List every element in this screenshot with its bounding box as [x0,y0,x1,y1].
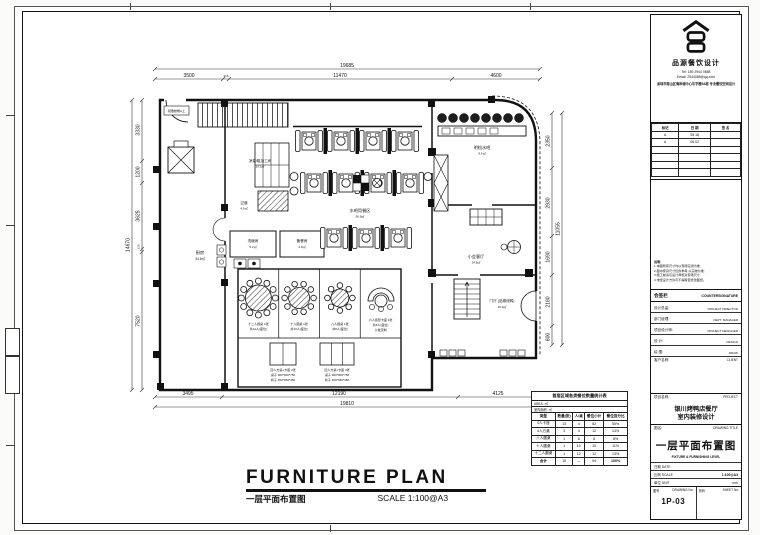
project-row: 项目名称: PROJECT [651,394,741,404]
brand-logo-icon [678,19,714,55]
shaft [434,155,448,211]
legend-caption: 共6人(座位) [373,322,389,327]
notes-block: 说明: 1.本图所有尺寸均以现场实测为准; 2.图中家具尺寸仅供参考,以实物为准… [651,259,741,289]
bar-counter [438,126,526,136]
stats-row: 十人圆桌1 1010 11% [532,443,628,451]
dining-label: 水吧用餐区 [350,207,371,214]
bar-area: 9.6㎡ [478,151,485,156]
registration-tick [6,225,15,226]
furniture-legend: 十二人圆桌 1张 共12人(座位) 十人圆桌 1张 共10人(座位) 八人圆桌 … [238,269,401,387]
sign-row: 设 计:DESIGN [651,335,741,346]
foyer-area: 16.9㎡ [498,304,507,309]
drawing-title-cn: 一层平面布置图 [651,435,741,455]
legend-caption: 共8人(座位) [332,326,348,331]
meta-scale: 比例 SCALE1:100@A3 [651,470,741,478]
svg-text:1200: 1200 [136,166,142,177]
legend-caption: 桌子 900*900*750 [325,372,350,377]
drawing-title-row: 图名: DRAWING TITLE [651,425,741,435]
stats-row: 八人圆桌1 88 8% [532,435,628,443]
stats-row: 十二人圆桌1 1212 13% [532,450,628,458]
svg-text:4125: 4125 [492,391,503,397]
registration-tick [530,3,531,10]
service-stair-hatch [258,191,288,211]
svg-text:12190: 12190 [332,391,346,397]
bar-label: 明档水吧 [474,144,492,151]
drawing-number-block: 图号 DRAWING No. 1P-03 页码 SHEET No. [651,486,741,519]
stats-title: 首层区域各类餐位数量统计表 [532,392,628,401]
svg-text:3330: 3330 [136,124,142,135]
foyer-label: 门厅 (品源烧鸭) [490,298,515,303]
svg-text:7520: 7520 [136,315,142,326]
svg-text:2350: 2350 [546,135,552,146]
title-underline [246,489,486,492]
rev-cell [711,139,741,147]
drawing-sheet: { "title_block": { "brand": { "name": "品… [0,0,760,535]
coldroom-label: 凉菜/粗加工间 [249,158,272,163]
sheet-title-cn: 一层平面布置图 [246,493,306,505]
legend-caption: 十人圆桌 1张 [290,321,308,326]
registration-tick [330,525,331,532]
legend-caption: 四人方桌+卡座 3张 [324,367,349,372]
revision-table: 标记 日 期 签 名 A 05.18 A 06.02 [651,123,741,180]
sign-row: 部门经理:DEPT. MANAGER [651,313,741,324]
svg-text:2930: 2930 [546,197,552,208]
svg-text:1690: 1690 [546,251,552,262]
svg-text:11055: 11055 [556,222,562,236]
dishroom-label: 洗碗间 [248,238,259,243]
svg-text:800: 800 [546,333,552,342]
registration-tick [6,115,15,116]
brand-address: 深圳市南山区海岸城中心写字楼5A栋 专业餐饮空间设计 [651,81,741,86]
legend-caption: 椅子 450*450*450 [271,377,296,382]
stats-total-row: 合计19 —94 100% [532,458,628,466]
sheet-title-en: FURNITURE PLAN [246,467,486,489]
sign-row: 项目设计师:PROJECT DESIGNER [651,324,741,335]
svg-text:19810: 19810 [340,401,354,407]
rev-cell: 05.18 [679,131,711,139]
title-block: 品源餐饮设计 Tel: 189 2944 0888 Email: 2944088… [650,14,742,520]
legend-caption: 共10人(座位) [290,326,307,331]
legend-caption: 桌子 900*900*750 [271,372,296,377]
rev-header: 日 期 [679,124,711,132]
sheet-scale: SCALE 1:100@A3 [378,493,449,505]
legend-caption: 十二人圆桌 1张 [248,321,269,326]
pantry-area: 4.8㎡ [298,244,305,249]
countersignature-header: 会签栏 COUNTERSIGNATURE [651,289,741,302]
svg-text:2180: 2180 [546,296,552,307]
lounge-area: 14.6㎡ [472,260,481,265]
brand-header: 品源餐饮设计 Tel: 189 2944 0888 Email: 2944088… [651,15,741,123]
legend-caption: 椅子 450*450*450 [325,377,350,382]
note-line: 4.未经设计方许可不得擅自修改图纸。 [654,278,738,282]
sheet-title: FURNITURE PLAN 一层平面布置图 SCALE 1:100@A3 [246,467,486,505]
rev-cell: 06.02 [679,139,711,147]
corridor-label: 过道 [240,200,248,205]
drawing-title-en: FIXTURE & FURNISHING LEVEL [651,455,741,462]
svg-text:3625: 3625 [136,210,142,221]
registration-tick [130,3,131,10]
svg-text:3495: 3495 [182,391,193,397]
registration-tick [330,3,331,10]
kitchen-area: 34.6㎡ [195,256,205,261]
lounge-label: 小会客厅 [468,253,485,260]
seat-statistics-table: 首层区域各类餐位数量统计表 AREA: ㎡ 室内面积: ㎡ 类型 数量(张) 人… [531,391,628,466]
rev-header: 标记 [652,124,679,132]
legend-caption: 六人弧形卡座 1张 [369,317,393,322]
legend-caption: 四人方桌+卡座 2张 [270,367,295,372]
legend-caption: 八人圆桌 1张 [331,321,349,326]
brand-email: Email: 2944088@qq.com [651,75,741,79]
rev-cell: A [652,131,679,139]
dining-area: 56.9㎡ [356,214,365,219]
svg-text:14670: 14670 [126,238,132,252]
margin-stamp-box [5,356,20,394]
stats-row: 4人方桌3 412 13% [532,428,628,436]
corridor-area: 4.6㎡ [240,206,247,211]
rev-cell [711,131,741,139]
legend-caption: 沙发定制 [375,327,387,332]
margin-stamp-box [5,328,20,356]
registration-tick [6,445,15,446]
floor-plan: 疏散楼梯A上 厨房 34.6㎡ 凉菜/粗加工间 10.1㎡ 过道 4.6㎡ 洗碗… [120,55,612,423]
foyer-stair [454,279,480,319]
svg-text:315: 315 [223,74,228,78]
rev-cell: A [652,139,679,147]
svg-text:11470: 11470 [333,73,347,79]
svg-text:130: 130 [137,244,141,249]
dishroom-area: 5.2㎡ [249,244,256,249]
sign-row: 设计总监:PROJECT DIRECTOR [651,302,741,313]
rev-header: 签 名 [711,124,741,132]
brand-tel: Tel: 189 2944 0888 [651,70,741,74]
stats-row: 4人卡座13 452 55% [532,420,628,428]
sign-row: 绘 图:DRAW [651,346,741,357]
project-name: 银川烤鸭店餐厅 室内装修设计 [651,404,741,425]
svg-text:19685: 19685 [340,63,354,69]
svg-text:3500: 3500 [183,73,194,79]
client-row: 客户名称: CLIENT [651,357,741,381]
pantry-label: 备餐间 [297,238,308,243]
meta-unit: 单位 UNITmm [651,478,741,486]
drawing-number: 1P-03 [653,497,694,506]
legend-caption: 共12人(座位) [250,326,267,331]
stair-label: 疏散楼梯A上 [168,108,185,113]
kitchen-label: 厨房 [196,249,204,256]
meta-date: 日期 DATE [651,462,741,470]
brand-name: 品源餐饮设计 [651,58,741,68]
svg-text:4600: 4600 [490,73,501,79]
